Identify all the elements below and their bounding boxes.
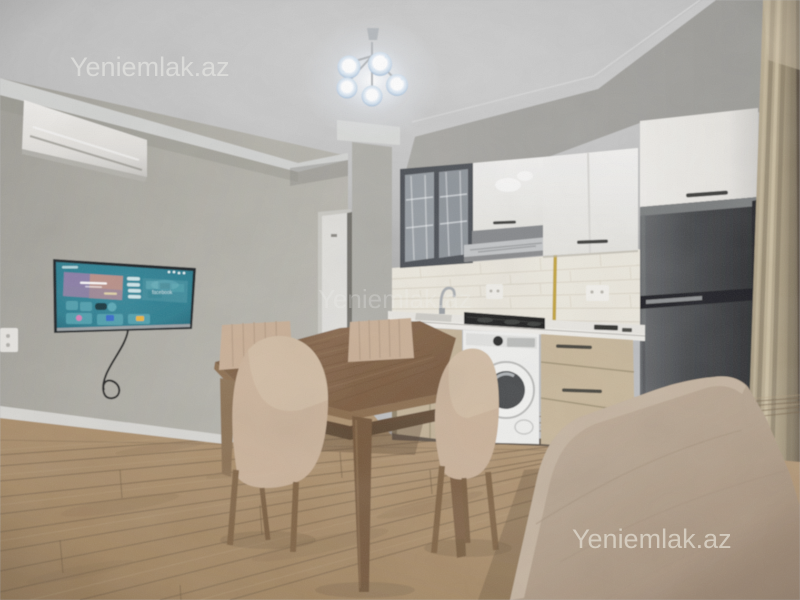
svg-text:Yeniemlak.az: Yeniemlak.az bbox=[70, 52, 230, 82]
svg-text:Yeniemlak.az: Yeniemlak.az bbox=[318, 284, 472, 314]
svg-text:Yeniemlak.az: Yeniemlak.az bbox=[572, 524, 732, 554]
